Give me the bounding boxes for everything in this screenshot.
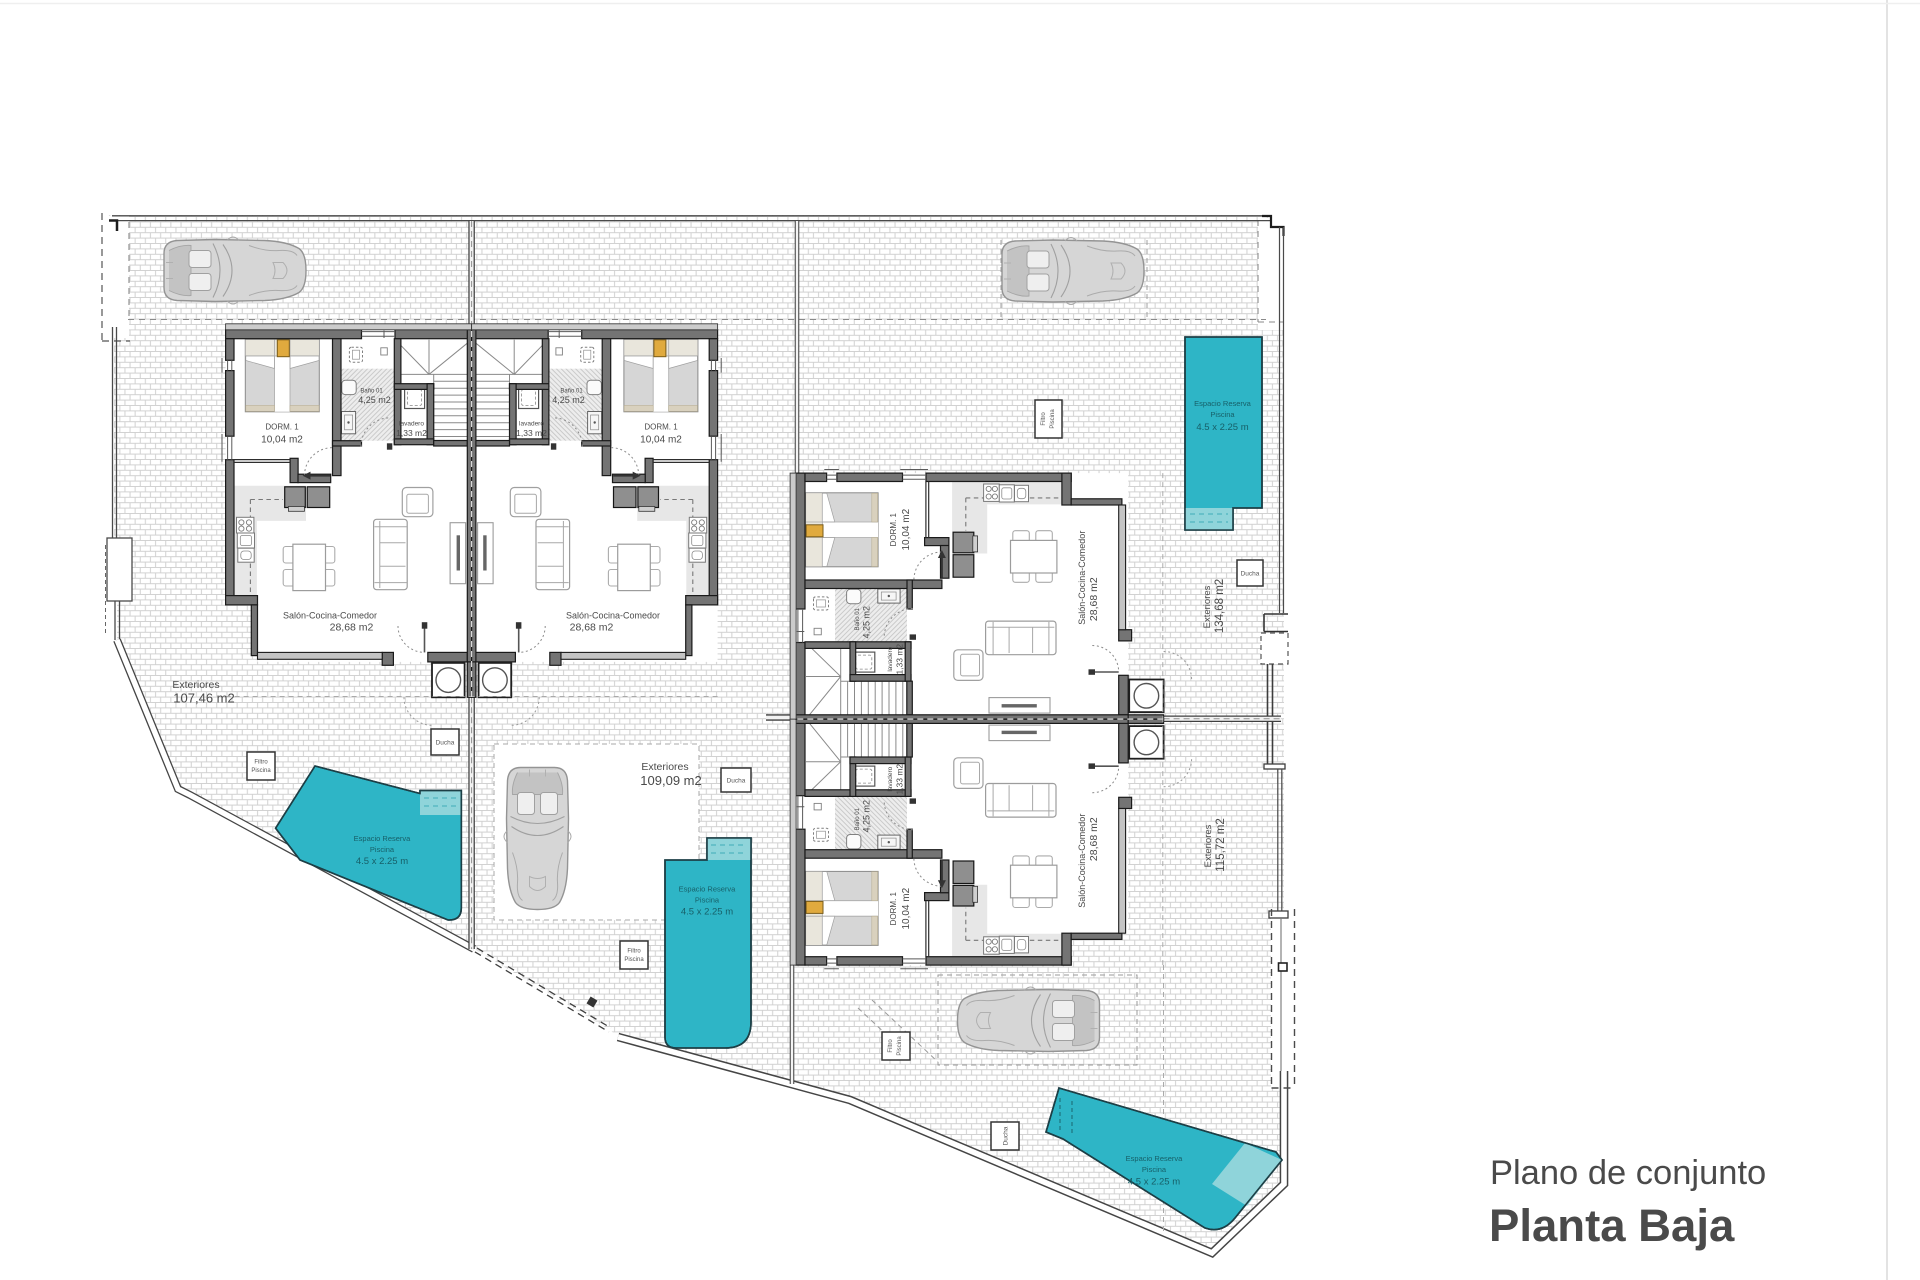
svg-text:Ducha: Ducha [436,740,455,747]
svg-text:Ducha: Ducha [1241,571,1260,578]
svg-text:Piscina: Piscina [1142,1165,1167,1174]
svg-text:115,72 m2: 115,72 m2 [1215,818,1227,872]
svg-text:Piscina: Piscina [1210,410,1235,419]
svg-text:Piscina: Piscina [897,1036,903,1056]
svg-text:Piscina: Piscina [695,896,720,905]
svg-text:Filtro: Filtro [627,949,641,955]
svg-text:Espacio Reserva: Espacio Reserva [354,834,412,843]
svg-text:Piscina: Piscina [251,768,271,774]
svg-text:Filtro: Filtro [1041,412,1047,426]
svg-text:Espacio Reserva: Espacio Reserva [679,885,737,894]
svg-text:Exteriores: Exteriores [172,679,219,691]
svg-text:134,68 m2: 134,68 m2 [1214,579,1226,633]
svg-text:Espacio Reserva: Espacio Reserva [1126,1154,1184,1163]
svg-text:Piscina: Piscina [370,845,395,854]
svg-text:Piscina: Piscina [624,957,644,963]
svg-text:Ducha: Ducha [1003,1126,1010,1145]
svg-text:4.5 x 2.25 m: 4.5 x 2.25 m [356,856,408,867]
svg-text:Exteriores: Exteriores [641,761,688,773]
svg-text:Plano de conjunto: Plano de conjunto [1490,1154,1766,1192]
svg-text:Piscina: Piscina [1050,409,1056,429]
svg-text:109,09 m2: 109,09 m2 [640,773,701,788]
svg-text:Ducha: Ducha [727,778,746,785]
svg-text:Exteriores: Exteriores [1203,824,1214,867]
svg-text:4.5 x 2.25 m: 4.5 x 2.25 m [1196,422,1248,433]
svg-text:Espacio Reserva: Espacio Reserva [1194,399,1252,408]
svg-text:4.5 x 2.25 m: 4.5 x 2.25 m [1128,1177,1180,1188]
svg-text:Exteriores: Exteriores [1202,585,1213,628]
svg-text:Filtro: Filtro [888,1039,894,1053]
svg-text:Filtro: Filtro [254,760,268,766]
svg-text:107,46 m2: 107,46 m2 [173,691,234,706]
svg-text:4.5 x 2.25 m: 4.5 x 2.25 m [681,907,733,918]
svg-text:Planta Baja: Planta Baja [1489,1200,1735,1251]
